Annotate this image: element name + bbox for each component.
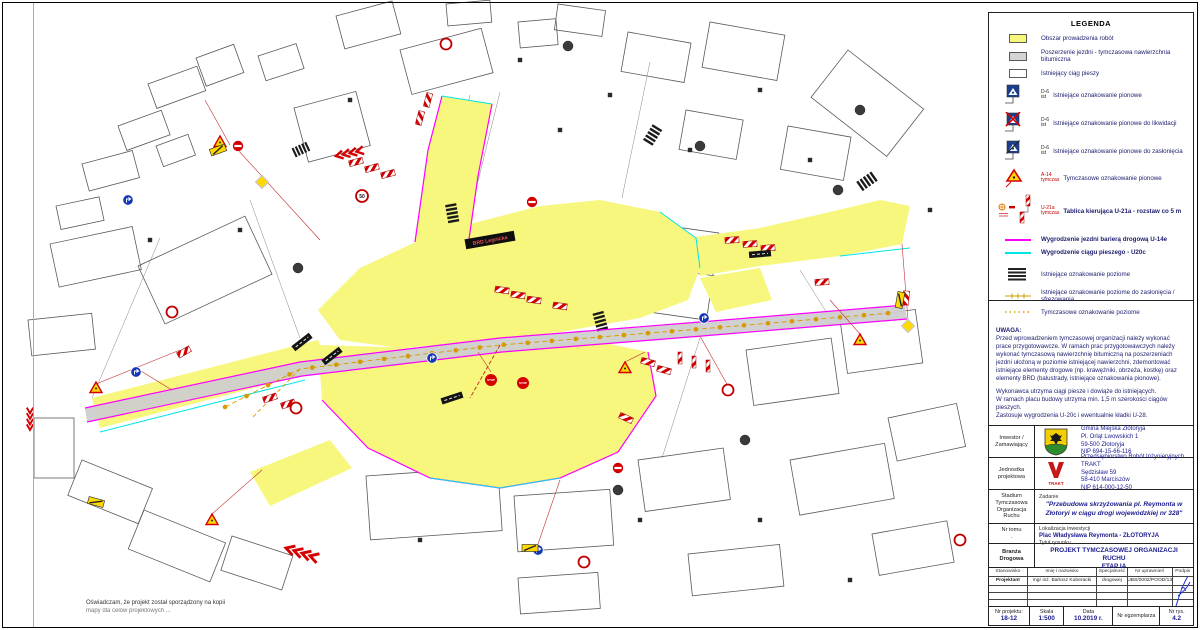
widening-swatch-icon [995,52,1041,61]
designer-row: Projektant mgr inż. Bartosz Kuberacki dr… [989,577,1193,586]
speed-limit-sign-icon: 50 [356,190,368,202]
project-task-title: "Przebudowa skrzyżowania pl. Reymonta w … [1039,501,1189,519]
title-block-footer: Nr projektu: 18-12 Skala 1:500 Data 10.2… [989,607,1193,625]
declaration-line2: mapy dla celów projektowych ... [86,608,346,615]
sign-to-remove-icon [995,112,1041,134]
project-number: 18-12 [1001,615,1017,623]
title-block: Inwestor / Zamawiający Gmina Miejska Zło… [989,425,1193,625]
legend-item: Poszerzenie jezdni - tymczasowa nawierzc… [995,49,1187,63]
notes-line: Zastosuje wygrodzenia U-20c i ewentualni… [996,412,1186,420]
legend-item: Wygrodzenie jezdni barierą drogową U-14e [995,236,1187,243]
svg-text:50: 50 [359,194,365,200]
pedestrian-route-swatch-icon [995,69,1041,78]
marking-to-cover-icon [995,292,1041,300]
legend-title: LEGENDA [995,19,1187,28]
personnel-table: Stanowisko Imię i nazwisko Specjalność N… [989,568,1193,607]
task-row: Stadium Tymczasowa Organizacja Ruchu Zad… [989,490,1193,524]
legend-item: Istniejące oznakowanie poziome [995,267,1187,283]
u21a-board-icon [995,194,1041,228]
notes: UWAGA: Przed wprowadzeniem tymczasowej o… [989,301,1193,425]
existing-sign-icon [995,84,1041,106]
legend-item: D-6ist Istniejące oznakowanie pionowe do… [995,112,1187,134]
priority-road-sign-icon [255,175,268,188]
legend-item: Istniejący ciąg pieszy [995,69,1187,78]
notes-line: W ramach placu budowy utrzyma min. 1,5 m… [996,396,1186,412]
trakt-logo-icon: TRAKT [1035,458,1077,489]
site-plan-svg: STOP STOP 50 BRD Legnicka [0,0,988,630]
notes-line: Wykonawca utrzyma ciągi piesze i dowiąże… [996,388,1186,396]
binding-margin-line [33,2,34,628]
date-value: 10.2019 r. [1074,615,1103,623]
svg-text:STOP: STOP [487,378,495,382]
figure-number: 4.2 [1172,615,1181,623]
stop-sign-icon: STOP [485,374,497,386]
notes-heading: UWAGA: [996,327,1021,334]
stop-sign-icon: STOP [517,377,529,389]
legend-item: D-6ist Istniejące oznakowanie pionowe do… [995,140,1187,162]
signature-scribble [1172,574,1193,608]
legend-item: D-6ist Istniejące oznakowanie pionowe [995,84,1187,106]
mandatory-direction-sign-icon [123,195,133,205]
legend-item: Wygrodzenie ciągu pieszego - U20c [995,249,1187,256]
declaration-line1: Oświadczam, że projekt został sporządzon… [86,600,346,608]
site-plan-map: STOP STOP 50 BRD Legnicka [0,0,988,630]
cyan-line-icon [995,250,1041,256]
existing-sign-to-remove-icon [563,41,573,51]
notes-paragraph: Przed wprowadzeniem tymczasowej organiza… [996,335,1177,382]
legend-item: U-21atymczas Tablica kierująca U-21a - r… [995,194,1187,228]
design-unit-row: Jednostka projektowa TRAKT Przedsiębiors… [989,458,1193,490]
zlotoryja-coat-of-arms-icon [1035,426,1077,457]
magenta-line-icon [995,237,1041,243]
work-area-swatch-icon [995,34,1041,43]
sign-to-cover-icon [995,140,1041,162]
drawing-title-row: Branża Drogowa Tytuł rysunku PROJEKT TYM… [989,544,1193,568]
legend-item: A-14tymczas Tymczasowe oznakowanie piono… [995,168,1187,188]
legend: LEGENDA Obszar prowadzenia robót Poszerz… [989,13,1193,301]
no-entry-sign-icon [233,141,244,152]
scale-value: 1:500 [1038,615,1054,623]
declaration-note: Oświadczam, że projekt został sporządzon… [86,600,346,615]
side-panel: LEGENDA Obszar prowadzenia robót Poszerz… [988,12,1194,626]
svg-text:STOP: STOP [519,381,527,385]
drawing-sheet: STOP STOP 50 BRD Legnicka Oświadczam, że… [0,0,1200,630]
legend-item: Obszar prowadzenia robót [995,34,1187,43]
existing-marking-icon [995,267,1041,283]
drawing-title: PROJEKT TYMCZASOWEJ ORGANIZACJI RUCHU [1039,547,1189,564]
temporary-sign-icon [995,168,1041,188]
